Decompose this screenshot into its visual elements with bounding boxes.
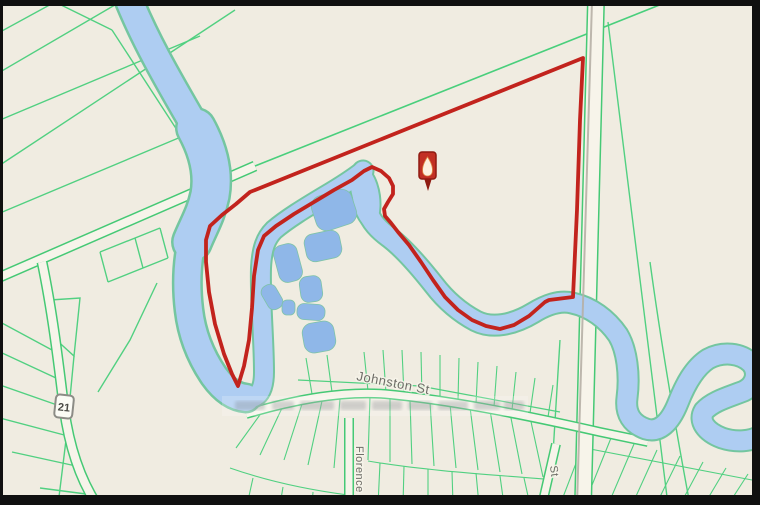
highway-21-shield: 21 — [54, 394, 74, 419]
map-window: Johnston St Florence St 21 — [0, 0, 760, 505]
watermark — [222, 396, 528, 416]
street-label-partial-st: St — [547, 465, 560, 478]
map-canvas[interactable]: Johnston St Florence St 21 — [0, 0, 760, 505]
street-label-florence: Florence — [353, 446, 365, 493]
highway-shield-number: 21 — [57, 401, 70, 414]
